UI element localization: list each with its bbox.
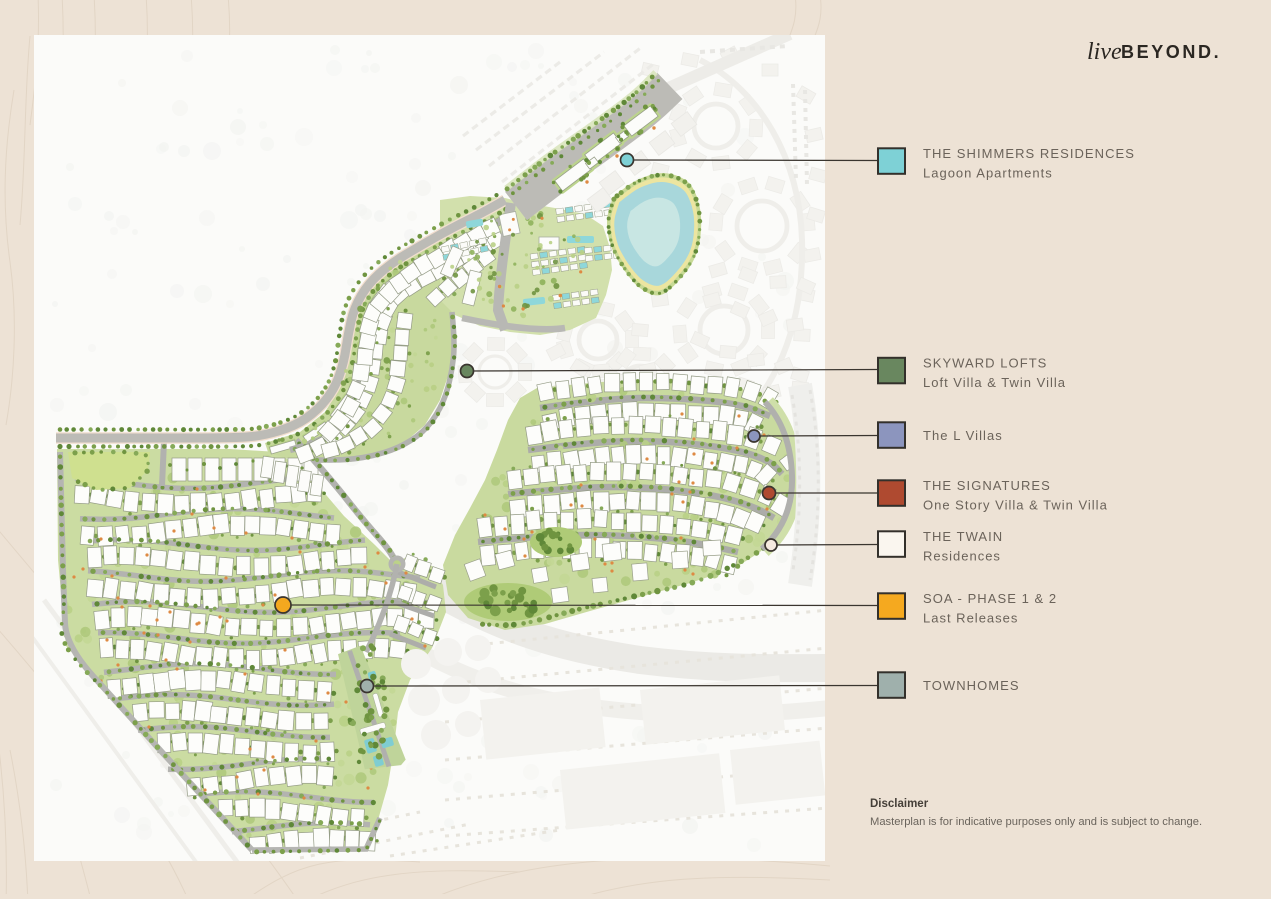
- svg-text:BEYOND.: BEYOND.: [1121, 42, 1221, 62]
- svg-text:THE TWAIN: THE TWAIN: [923, 529, 1003, 544]
- svg-text:Loft Villa & Twin Villa: Loft Villa & Twin Villa: [923, 375, 1066, 390]
- svg-text:SOA - PHASE 1 & 2: SOA - PHASE 1 & 2: [923, 591, 1057, 606]
- svg-text:Masterplan is for indicative p: Masterplan is for indicative purposes on…: [870, 816, 1202, 828]
- svg-text:Disclaimer: Disclaimer: [870, 798, 929, 810]
- svg-text:Last Releases: Last Releases: [923, 611, 1018, 626]
- svg-text:live: live: [1087, 39, 1122, 65]
- svg-text:THE SHIMMERS RESIDENCES: THE SHIMMERS RESIDENCES: [923, 146, 1135, 161]
- svg-text:Residences: Residences: [923, 549, 1001, 564]
- svg-text:TOWNHOMES: TOWNHOMES: [923, 678, 1020, 693]
- svg-text:Lagoon Apartments: Lagoon Apartments: [923, 166, 1053, 181]
- svg-text:One Story Villa & Twin Villa: One Story Villa & Twin Villa: [923, 498, 1108, 513]
- svg-text:The L Villas: The L Villas: [923, 428, 1003, 443]
- svg-text:THE SIGNATURES: THE SIGNATURES: [923, 478, 1051, 493]
- svg-text:SKYWARD LOFTS: SKYWARD LOFTS: [923, 356, 1047, 371]
